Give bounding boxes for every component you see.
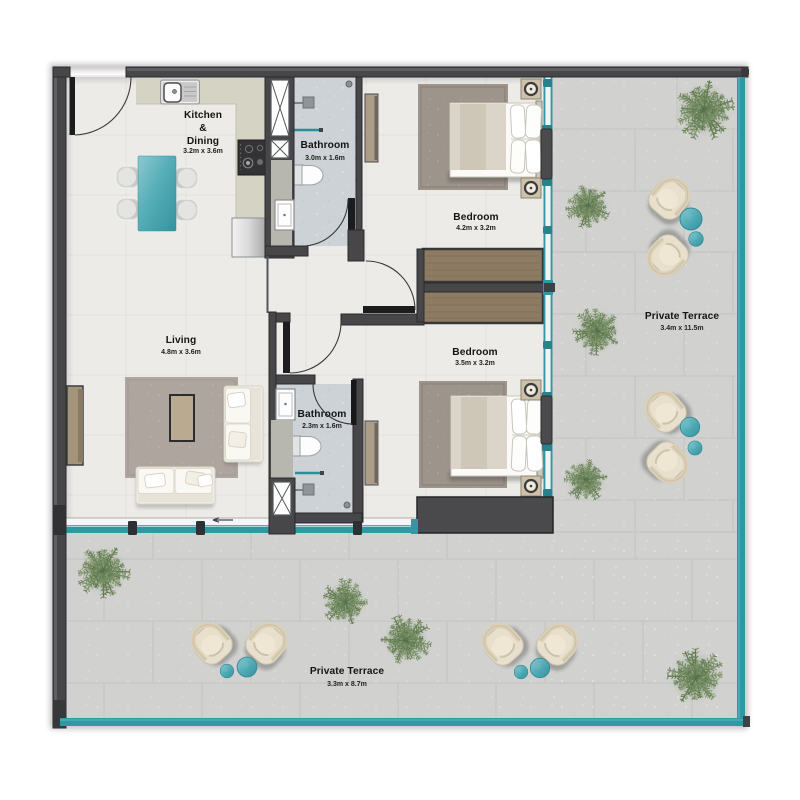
svg-text:Bathroom: Bathroom xyxy=(298,409,347,420)
svg-text:2.3m x 1.6m: 2.3m x 1.6m xyxy=(302,423,342,430)
svg-text:Bedroom: Bedroom xyxy=(452,347,497,358)
svg-text:Living: Living xyxy=(166,335,197,346)
svg-text:3.2m x 3.6m: 3.2m x 3.6m xyxy=(183,148,223,155)
svg-text:Bedroom: Bedroom xyxy=(453,212,498,223)
svg-text:Private Terrace: Private Terrace xyxy=(645,311,720,322)
svg-text:3.4m x 11.5m: 3.4m x 11.5m xyxy=(660,325,703,332)
svg-text:Private Terrace: Private Terrace xyxy=(310,666,385,677)
svg-text:3.3m x 8.7m: 3.3m x 8.7m xyxy=(327,681,367,688)
svg-text:4.8m x 3.6m: 4.8m x 3.6m xyxy=(161,349,201,356)
svg-text:&: & xyxy=(199,123,207,134)
svg-text:Kitchen: Kitchen xyxy=(184,110,222,121)
svg-text:3.0m x 1.6m: 3.0m x 1.6m xyxy=(305,155,345,162)
svg-text:Bathroom: Bathroom xyxy=(301,140,350,151)
svg-text:4.2m x 3.2m: 4.2m x 3.2m xyxy=(456,225,496,232)
svg-text:3.5m x 3.2m: 3.5m x 3.2m xyxy=(455,360,495,367)
svg-text:Dining: Dining xyxy=(187,136,219,147)
